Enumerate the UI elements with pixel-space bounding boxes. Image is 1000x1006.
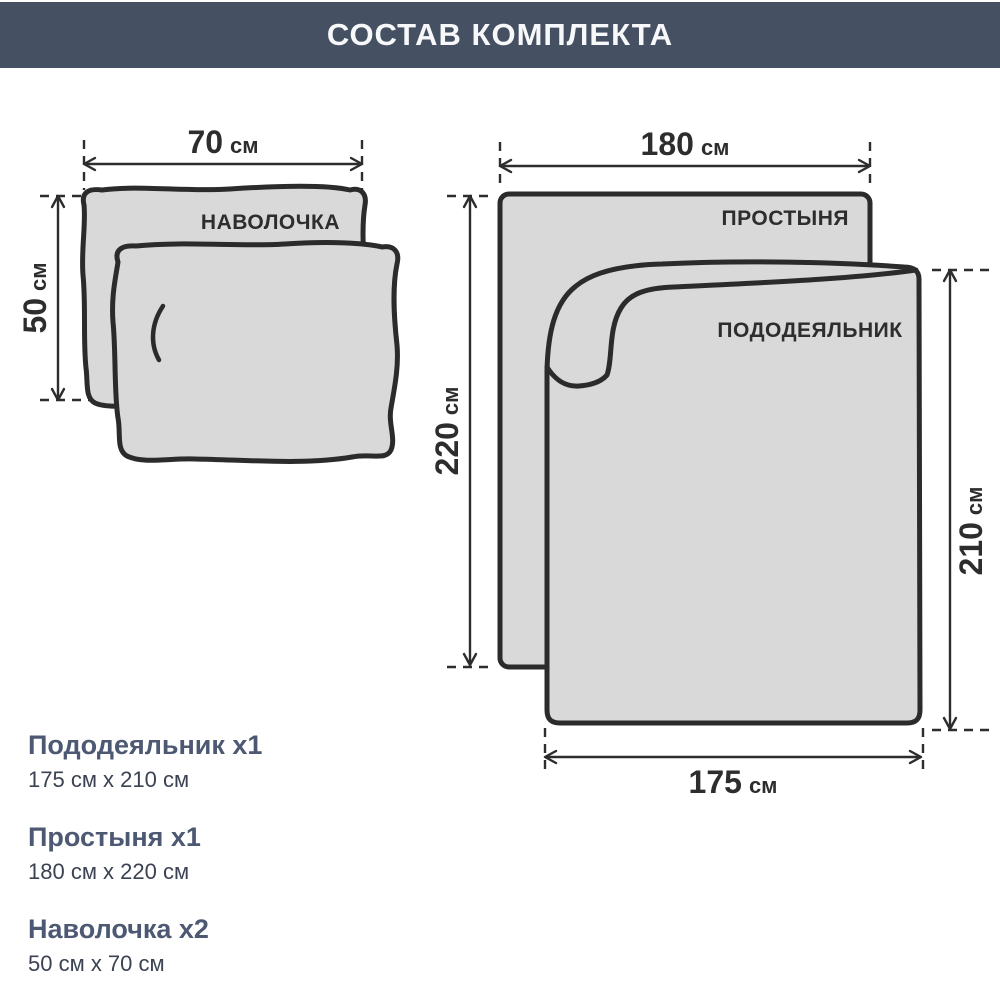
legend-item-size: 175 см x 210 см	[28, 768, 262, 792]
sheet-width-dimension: 180см	[500, 126, 870, 188]
sheet-width-label: 180см	[641, 126, 730, 162]
legend-item-size: 50 см x 70 см	[28, 952, 262, 976]
legend-item-name: Наволочка x2	[28, 914, 262, 944]
duvet-width-label: 175см	[689, 764, 778, 800]
legend-item-size: 180 см x 220 см	[28, 860, 262, 884]
duvet-height-label: 210см	[953, 487, 989, 576]
sheet-height-label: 220см	[429, 387, 465, 476]
legend-list: Пододеяльник x1 175 см x 210 см Простыня…	[28, 730, 262, 1006]
duvet-group: ПОДОДЕЯЛЬНИК	[547, 262, 920, 723]
pillow-width-dimension: 70см	[84, 124, 362, 190]
legend-item-sheet: Простыня x1 180 см x 220 см	[28, 822, 262, 884]
legend-item-name: Простыня x1	[28, 822, 262, 852]
sheet-label: ПРОСТЫНЯ	[722, 207, 849, 230]
pillow-width-label: 70см	[187, 124, 258, 160]
duvet-height-dimension: 210см	[932, 270, 992, 730]
pillow-height-label: 50см	[17, 262, 53, 333]
duvet-label: ПОДОДЕЯЛЬНИК	[717, 319, 902, 342]
sheet-height-dimension: 220см	[429, 196, 494, 667]
pillowcase-group: НАВОЛОЧКА	[83, 186, 398, 461]
legend-item-duvet: Пододеяльник x1 175 см x 210 см	[28, 730, 262, 792]
duvet-width-dimension: 175см	[545, 728, 923, 800]
legend-item-pillowcase: Наволочка x2 50 см x 70 см	[28, 914, 262, 976]
pillowcase-label: НАВОЛОЧКА	[201, 211, 340, 234]
legend-item-name: Пододеяльник x1	[28, 730, 262, 760]
